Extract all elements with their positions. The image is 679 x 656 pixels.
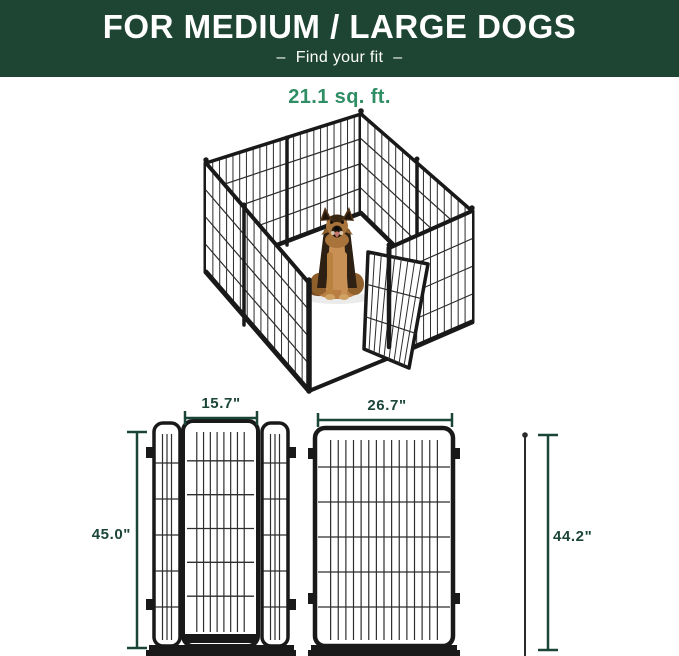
dim-label-door-width: 15.7" <box>171 395 271 412</box>
dim-label-panel-height: 44.2" <box>553 528 623 545</box>
dim-label-panel-width: 26.7" <box>337 397 437 414</box>
large-panel-diagram <box>308 428 460 656</box>
playpen-graphics <box>0 0 679 656</box>
dim-line-panel-width <box>318 413 452 427</box>
side-strip-left <box>154 423 180 646</box>
door-diagram <box>183 421 258 646</box>
dim-label-door-panel-height: 45.0" <box>41 526 131 543</box>
pen-illustration <box>203 108 474 391</box>
door-panel-diagram <box>146 421 296 656</box>
ground-stake <box>522 432 528 656</box>
product-infographic: FOR MEDIUM / LARGE DOGS – Find your fit … <box>0 0 679 656</box>
pen-door-threshold <box>309 358 389 391</box>
pen-door-open <box>364 248 428 368</box>
side-strip-right <box>262 423 288 646</box>
door-bottom-rail <box>185 634 256 643</box>
